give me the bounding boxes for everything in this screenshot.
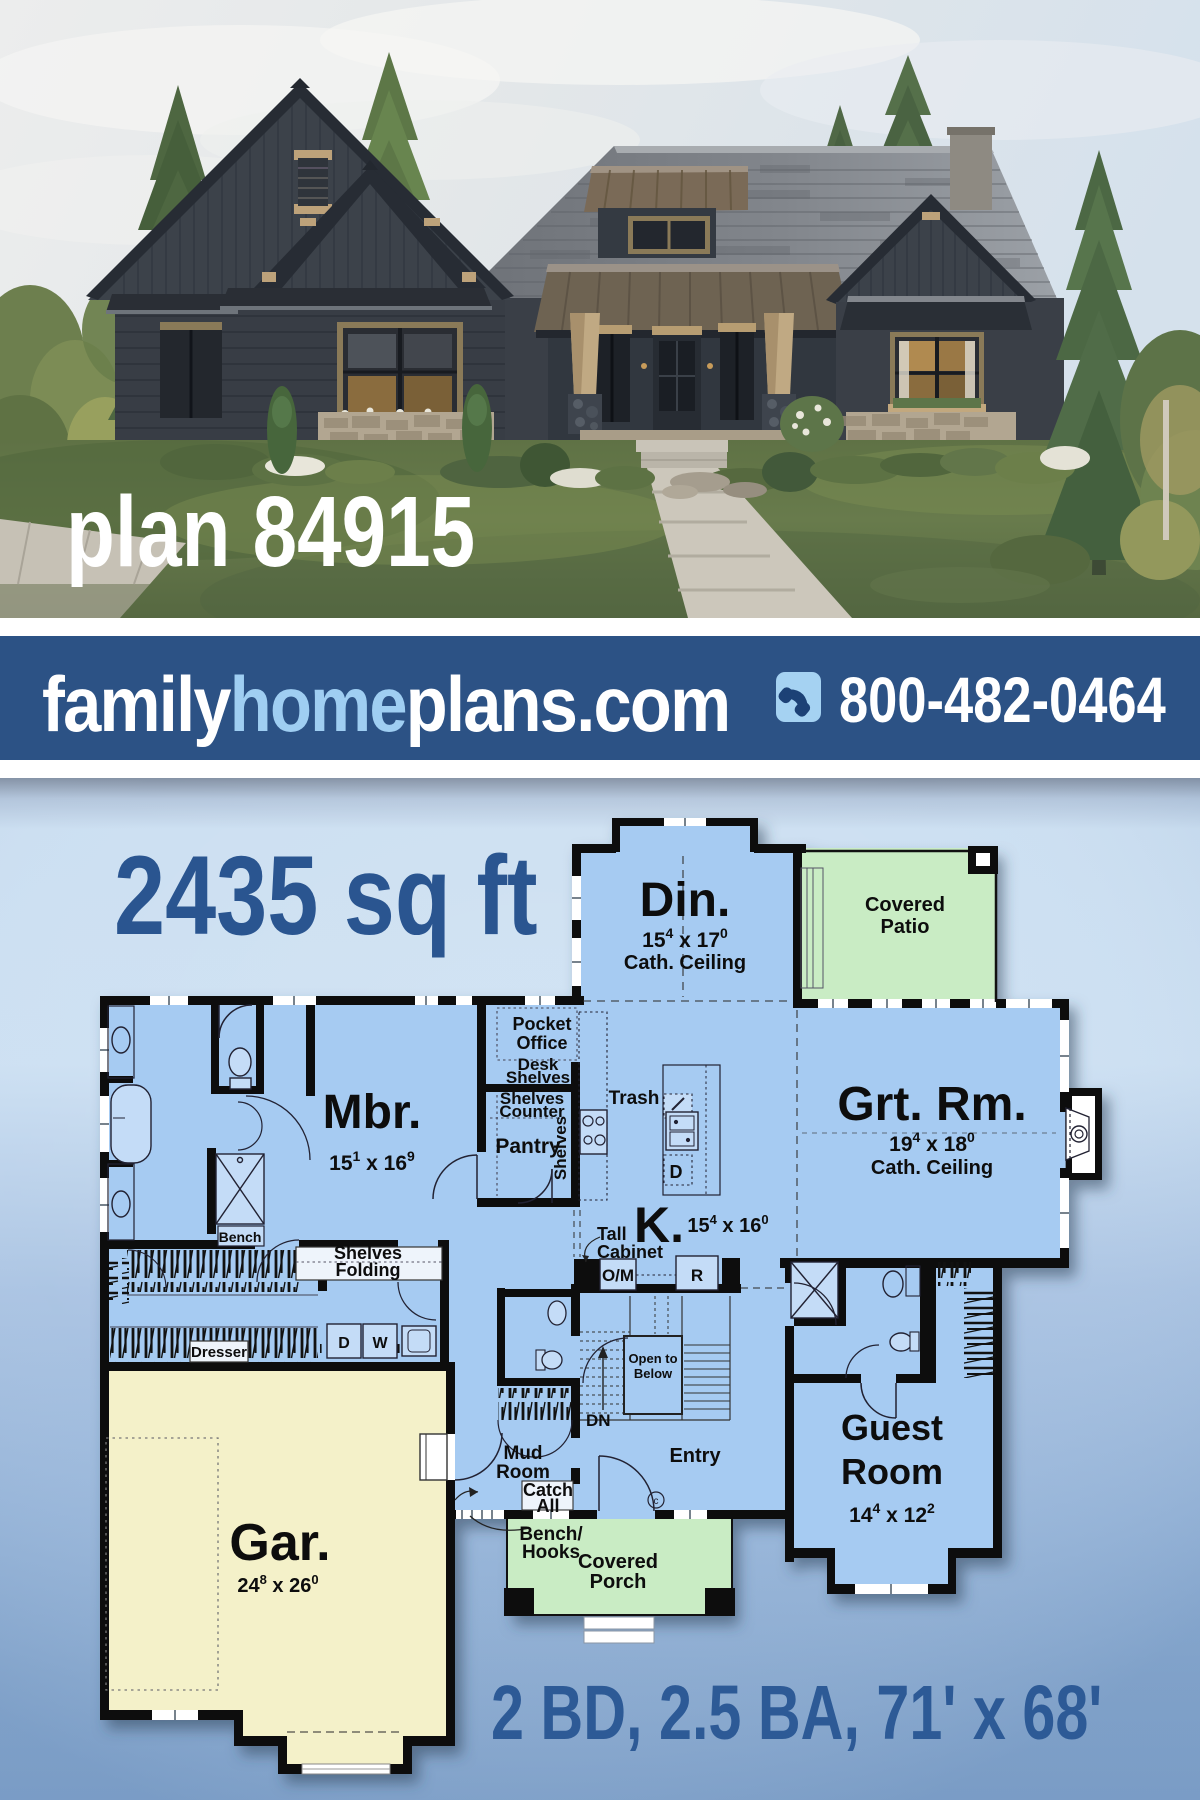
svg-text:Tall: Tall — [597, 1224, 627, 1244]
svg-text:plan 84915: plan 84915 — [66, 477, 475, 589]
svg-text:DN: DN — [586, 1411, 611, 1430]
svg-text:Mud: Mud — [503, 1443, 542, 1464]
svg-text:Office: Office — [516, 1033, 567, 1053]
svg-text:Mbr.: Mbr. — [323, 1086, 422, 1139]
svg-text:Below: Below — [634, 1366, 673, 1381]
svg-text:800-482-0464: 800-482-0464 — [839, 665, 1166, 736]
svg-text:Guest: Guest — [841, 1407, 943, 1448]
svg-text:O/M: O/M — [602, 1266, 634, 1285]
svg-text:c: c — [654, 1496, 659, 1507]
svg-text:Covered: Covered — [865, 894, 945, 916]
svg-text:Porch: Porch — [590, 1571, 647, 1593]
svg-text:194 x 180: 194 x 180 — [889, 1129, 975, 1156]
svg-text:Shelves: Shelves — [506, 1068, 570, 1087]
svg-text:Cath. Ceiling: Cath. Ceiling — [624, 952, 746, 974]
svg-text:248 x 260: 248 x 260 — [237, 1572, 318, 1597]
svg-text:Shelves: Shelves — [551, 1116, 570, 1180]
svg-text:Cabinet: Cabinet — [597, 1242, 663, 1262]
svg-text:Entry: Entry — [669, 1445, 721, 1467]
svg-text:Dresser: Dresser — [191, 1344, 247, 1361]
svg-text:Open to: Open to — [628, 1351, 677, 1366]
svg-text:Gar.: Gar. — [229, 1514, 330, 1572]
svg-text:Patio: Patio — [881, 916, 930, 938]
svg-text:familyhomeplans.com: familyhomeplans.com — [42, 660, 729, 748]
svg-text:R: R — [691, 1266, 703, 1285]
svg-text:154 x 160: 154 x 160 — [687, 1212, 768, 1237]
svg-text:151 x 169: 151 x 169 — [329, 1148, 415, 1175]
svg-text:154 x 170: 154 x 170 — [642, 925, 728, 952]
svg-text:Covered: Covered — [578, 1551, 658, 1573]
svg-text:144 x 122: 144 x 122 — [849, 1500, 935, 1527]
svg-text:Pocket: Pocket — [512, 1014, 571, 1034]
svg-text:All: All — [536, 1496, 559, 1516]
svg-text:Grt. Rm.: Grt. Rm. — [837, 1078, 1026, 1131]
svg-text:Din.: Din. — [640, 874, 731, 927]
svg-text:Room: Room — [841, 1451, 943, 1492]
svg-text:Cath. Ceiling: Cath. Ceiling — [871, 1157, 993, 1179]
svg-text:Hooks: Hooks — [522, 1542, 580, 1563]
svg-text:D: D — [670, 1162, 683, 1182]
svg-text:2 BD, 2.5 BA, 71' x 68': 2 BD, 2.5 BA, 71' x 68' — [491, 1670, 1102, 1756]
svg-text:Trash: Trash — [609, 1088, 660, 1109]
svg-text:D: D — [338, 1335, 350, 1352]
svg-text:Folding: Folding — [336, 1260, 401, 1280]
svg-text:2435 sq ft: 2435 sq ft — [114, 832, 538, 958]
svg-text:Bench: Bench — [219, 1229, 262, 1245]
svg-text:W: W — [372, 1335, 388, 1352]
